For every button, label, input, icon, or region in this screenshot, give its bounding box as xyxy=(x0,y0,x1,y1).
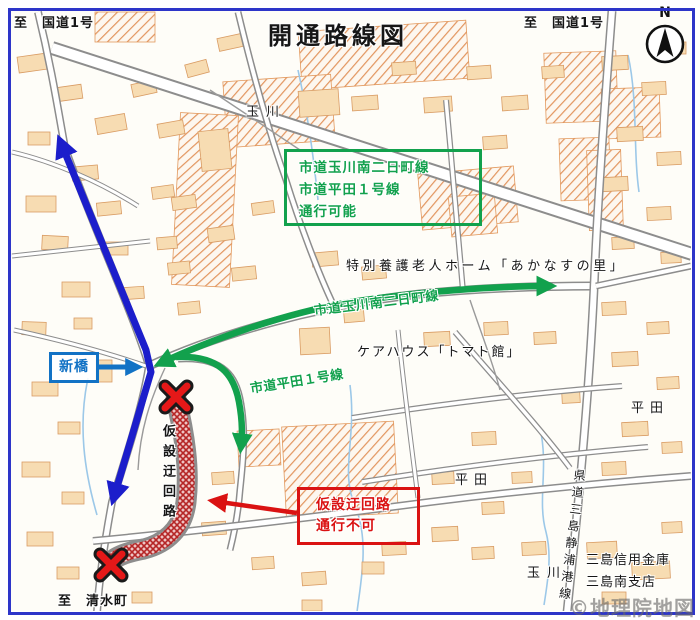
page-title: 開通路線図 xyxy=(268,16,408,51)
bank-name: 三島信用金庫 xyxy=(586,550,670,572)
edge-label-route1-west: 至 国道1号 xyxy=(14,12,94,31)
landmark-care-house: ケアハウス「トマト館」 xyxy=(357,341,521,360)
open-routes-legend-box: 市道玉川南二日町線 市道平田１号線 通行可能 xyxy=(284,149,482,226)
legend-line-hirata: 市道平田１号線 xyxy=(299,179,479,201)
area-label-hirata-west: 平田 xyxy=(455,469,493,488)
edge-label-route1-east: 至 国道1号 xyxy=(524,12,604,31)
landmark-nursing-home: 特別養護老人ホーム「あかなすの里」 xyxy=(346,255,626,274)
area-label-hirata-east: 平田 xyxy=(631,397,669,416)
closed-line-detour: 仮設迂回路 xyxy=(316,495,417,516)
compass: N xyxy=(642,5,688,67)
legend-line-passable: 通行可能 xyxy=(299,201,479,223)
closed-route-callout-box: 仮設迂回路 通行不可 xyxy=(297,487,420,545)
closure-x-north xyxy=(165,386,187,408)
closed-line-impassable: 通行不可 xyxy=(316,516,417,537)
compass-north-label: N xyxy=(642,5,688,21)
map-stage: 開通路線図 至 国道1号 至 国道1号 N 玉川 市道玉川南二日町線 市道平田１… xyxy=(0,0,700,620)
detour-road-vertical-label: 仮設迂回路 xyxy=(158,424,177,524)
edge-label-shimizucho: 至 清水町 xyxy=(58,590,128,609)
area-label-tamagawa-north: 玉川 xyxy=(246,101,286,120)
bridge-callout-shinbashi: 新橋 xyxy=(49,352,99,383)
map-copyright: ©地理院地図 xyxy=(569,592,695,620)
landmark-bank: 三島信用金庫 三島南支店 xyxy=(586,550,670,594)
legend-line-futsukamachi: 市道玉川南二日町線 xyxy=(299,157,479,179)
closure-x-south xyxy=(100,554,122,576)
compass-needle-icon xyxy=(644,22,686,66)
bank-branch: 三島南支店 xyxy=(586,572,670,594)
